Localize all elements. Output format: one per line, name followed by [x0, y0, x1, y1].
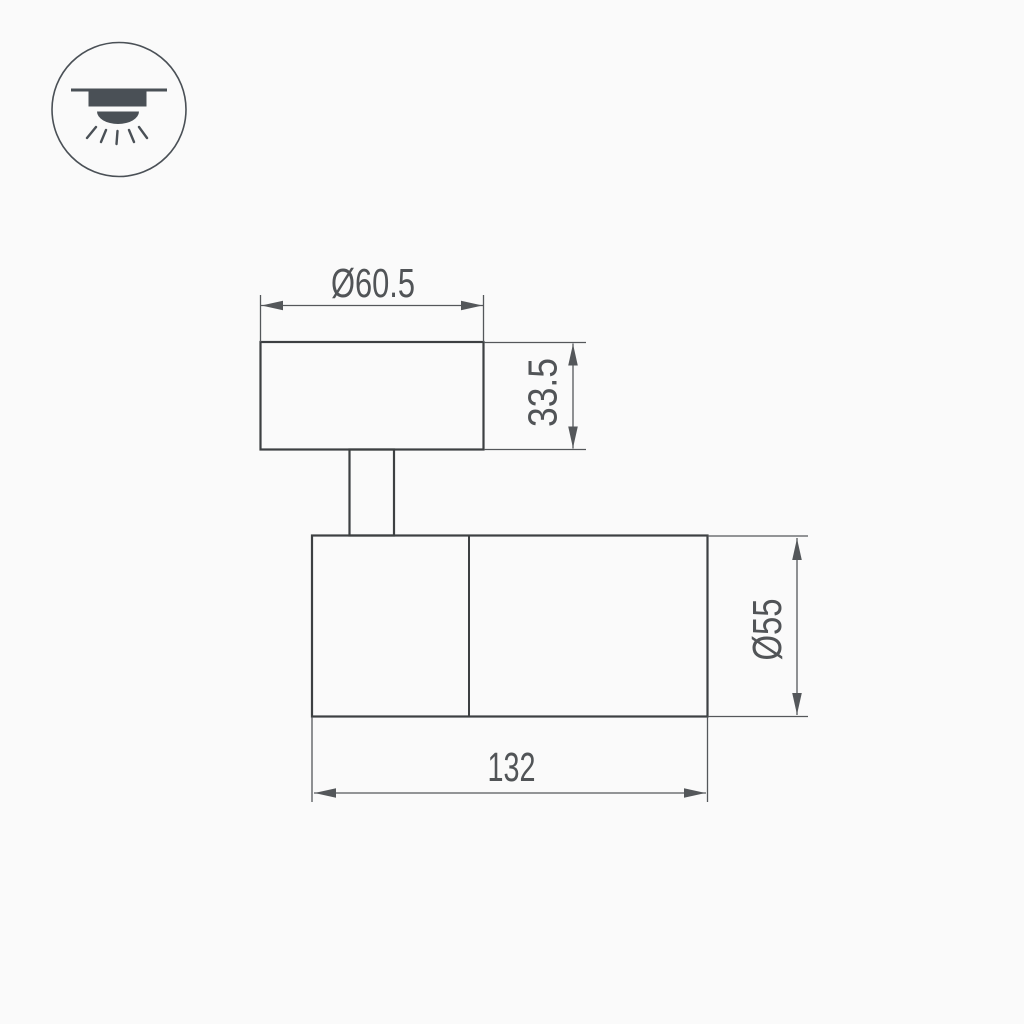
mount-base-outline	[261, 342, 484, 450]
arrowhead-down	[792, 693, 802, 715]
arrowhead-up	[792, 539, 802, 561]
icon-lamp-housing	[89, 92, 147, 107]
light-ray	[87, 127, 96, 138]
icon-light-rays	[87, 127, 147, 144]
dim-body-diameter: Ø55	[708, 536, 809, 717]
arrowhead-right	[684, 788, 706, 798]
light-ray	[129, 130, 134, 142]
dim-label-body-diameter: Ø55	[744, 599, 790, 661]
dimension-drawing-canvas: Ø60.5 33.5 Ø55	[0, 0, 1024, 1024]
lamp-body-outline	[312, 536, 708, 717]
arrowhead-down	[568, 427, 578, 449]
ceiling-light-icon	[52, 43, 186, 177]
dim-base-diameter: Ø60.5	[261, 260, 484, 342]
dim-label-body-length: 132	[488, 744, 536, 790]
dim-label-base-diameter: Ø60.5	[331, 260, 415, 306]
stem-outline	[350, 450, 395, 536]
icon-circle-outline	[52, 43, 186, 177]
light-ray	[101, 130, 106, 142]
light-ray	[139, 127, 147, 138]
arrowhead-right	[461, 301, 483, 311]
arrowhead-left	[315, 788, 337, 798]
icon-lamp-dome	[97, 112, 139, 125]
dim-base-height: 33.5	[484, 343, 586, 450]
light-ray	[117, 131, 118, 144]
arrowhead-up	[568, 344, 578, 366]
arrowhead-left	[262, 301, 284, 311]
dim-label-base-height: 33.5	[520, 358, 566, 427]
dim-body-length: 132	[312, 717, 708, 802]
spotlight-dimension-drawing: Ø60.5 33.5 Ø55	[0, 0, 1024, 1024]
icon-lamp-body	[89, 92, 147, 125]
fixture-outline	[261, 342, 708, 717]
